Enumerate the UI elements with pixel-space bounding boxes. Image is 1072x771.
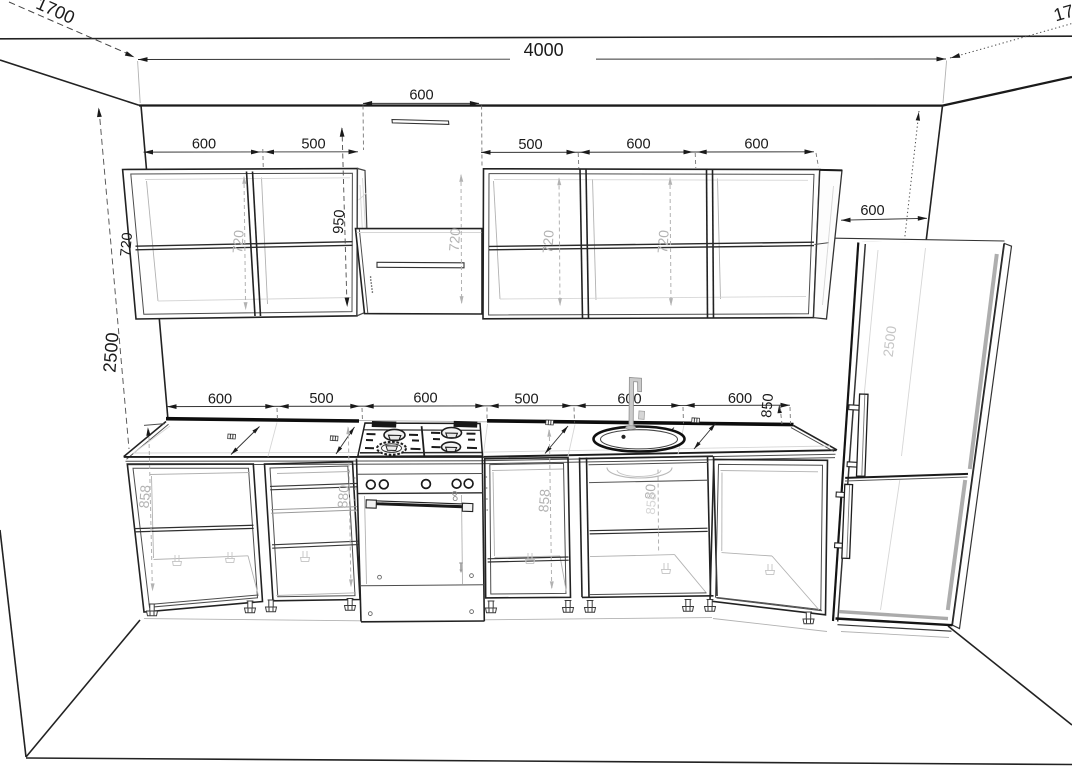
svg-text:2500: 2500 (99, 332, 122, 373)
svg-text:720: 720 (446, 227, 464, 252)
svg-text:720: 720 (229, 229, 247, 254)
svg-text:720: 720 (118, 232, 136, 258)
svg-text:600: 600 (192, 137, 216, 153)
svg-text:500: 500 (309, 391, 333, 407)
svg-text:600: 600 (860, 203, 884, 219)
svg-text:720: 720 (654, 229, 672, 254)
svg-text:600: 600 (728, 391, 752, 407)
svg-text:600: 600 (413, 391, 437, 407)
svg-text:850: 850 (759, 393, 777, 419)
svg-text:858: 858 (643, 492, 659, 515)
svg-text:500: 500 (301, 137, 325, 153)
svg-text:500: 500 (514, 391, 538, 407)
svg-text:600: 600 (626, 137, 650, 153)
svg-text:4000: 4000 (524, 40, 564, 60)
svg-text:600: 600 (409, 88, 433, 104)
svg-text:950: 950 (331, 209, 348, 234)
svg-text:500: 500 (518, 137, 542, 153)
svg-text:600: 600 (208, 392, 232, 408)
svg-text:858: 858 (535, 488, 553, 513)
svg-text:880: 880 (334, 484, 352, 509)
svg-text:858: 858 (136, 484, 154, 509)
svg-text:600: 600 (744, 137, 768, 153)
svg-text:720: 720 (539, 229, 557, 254)
